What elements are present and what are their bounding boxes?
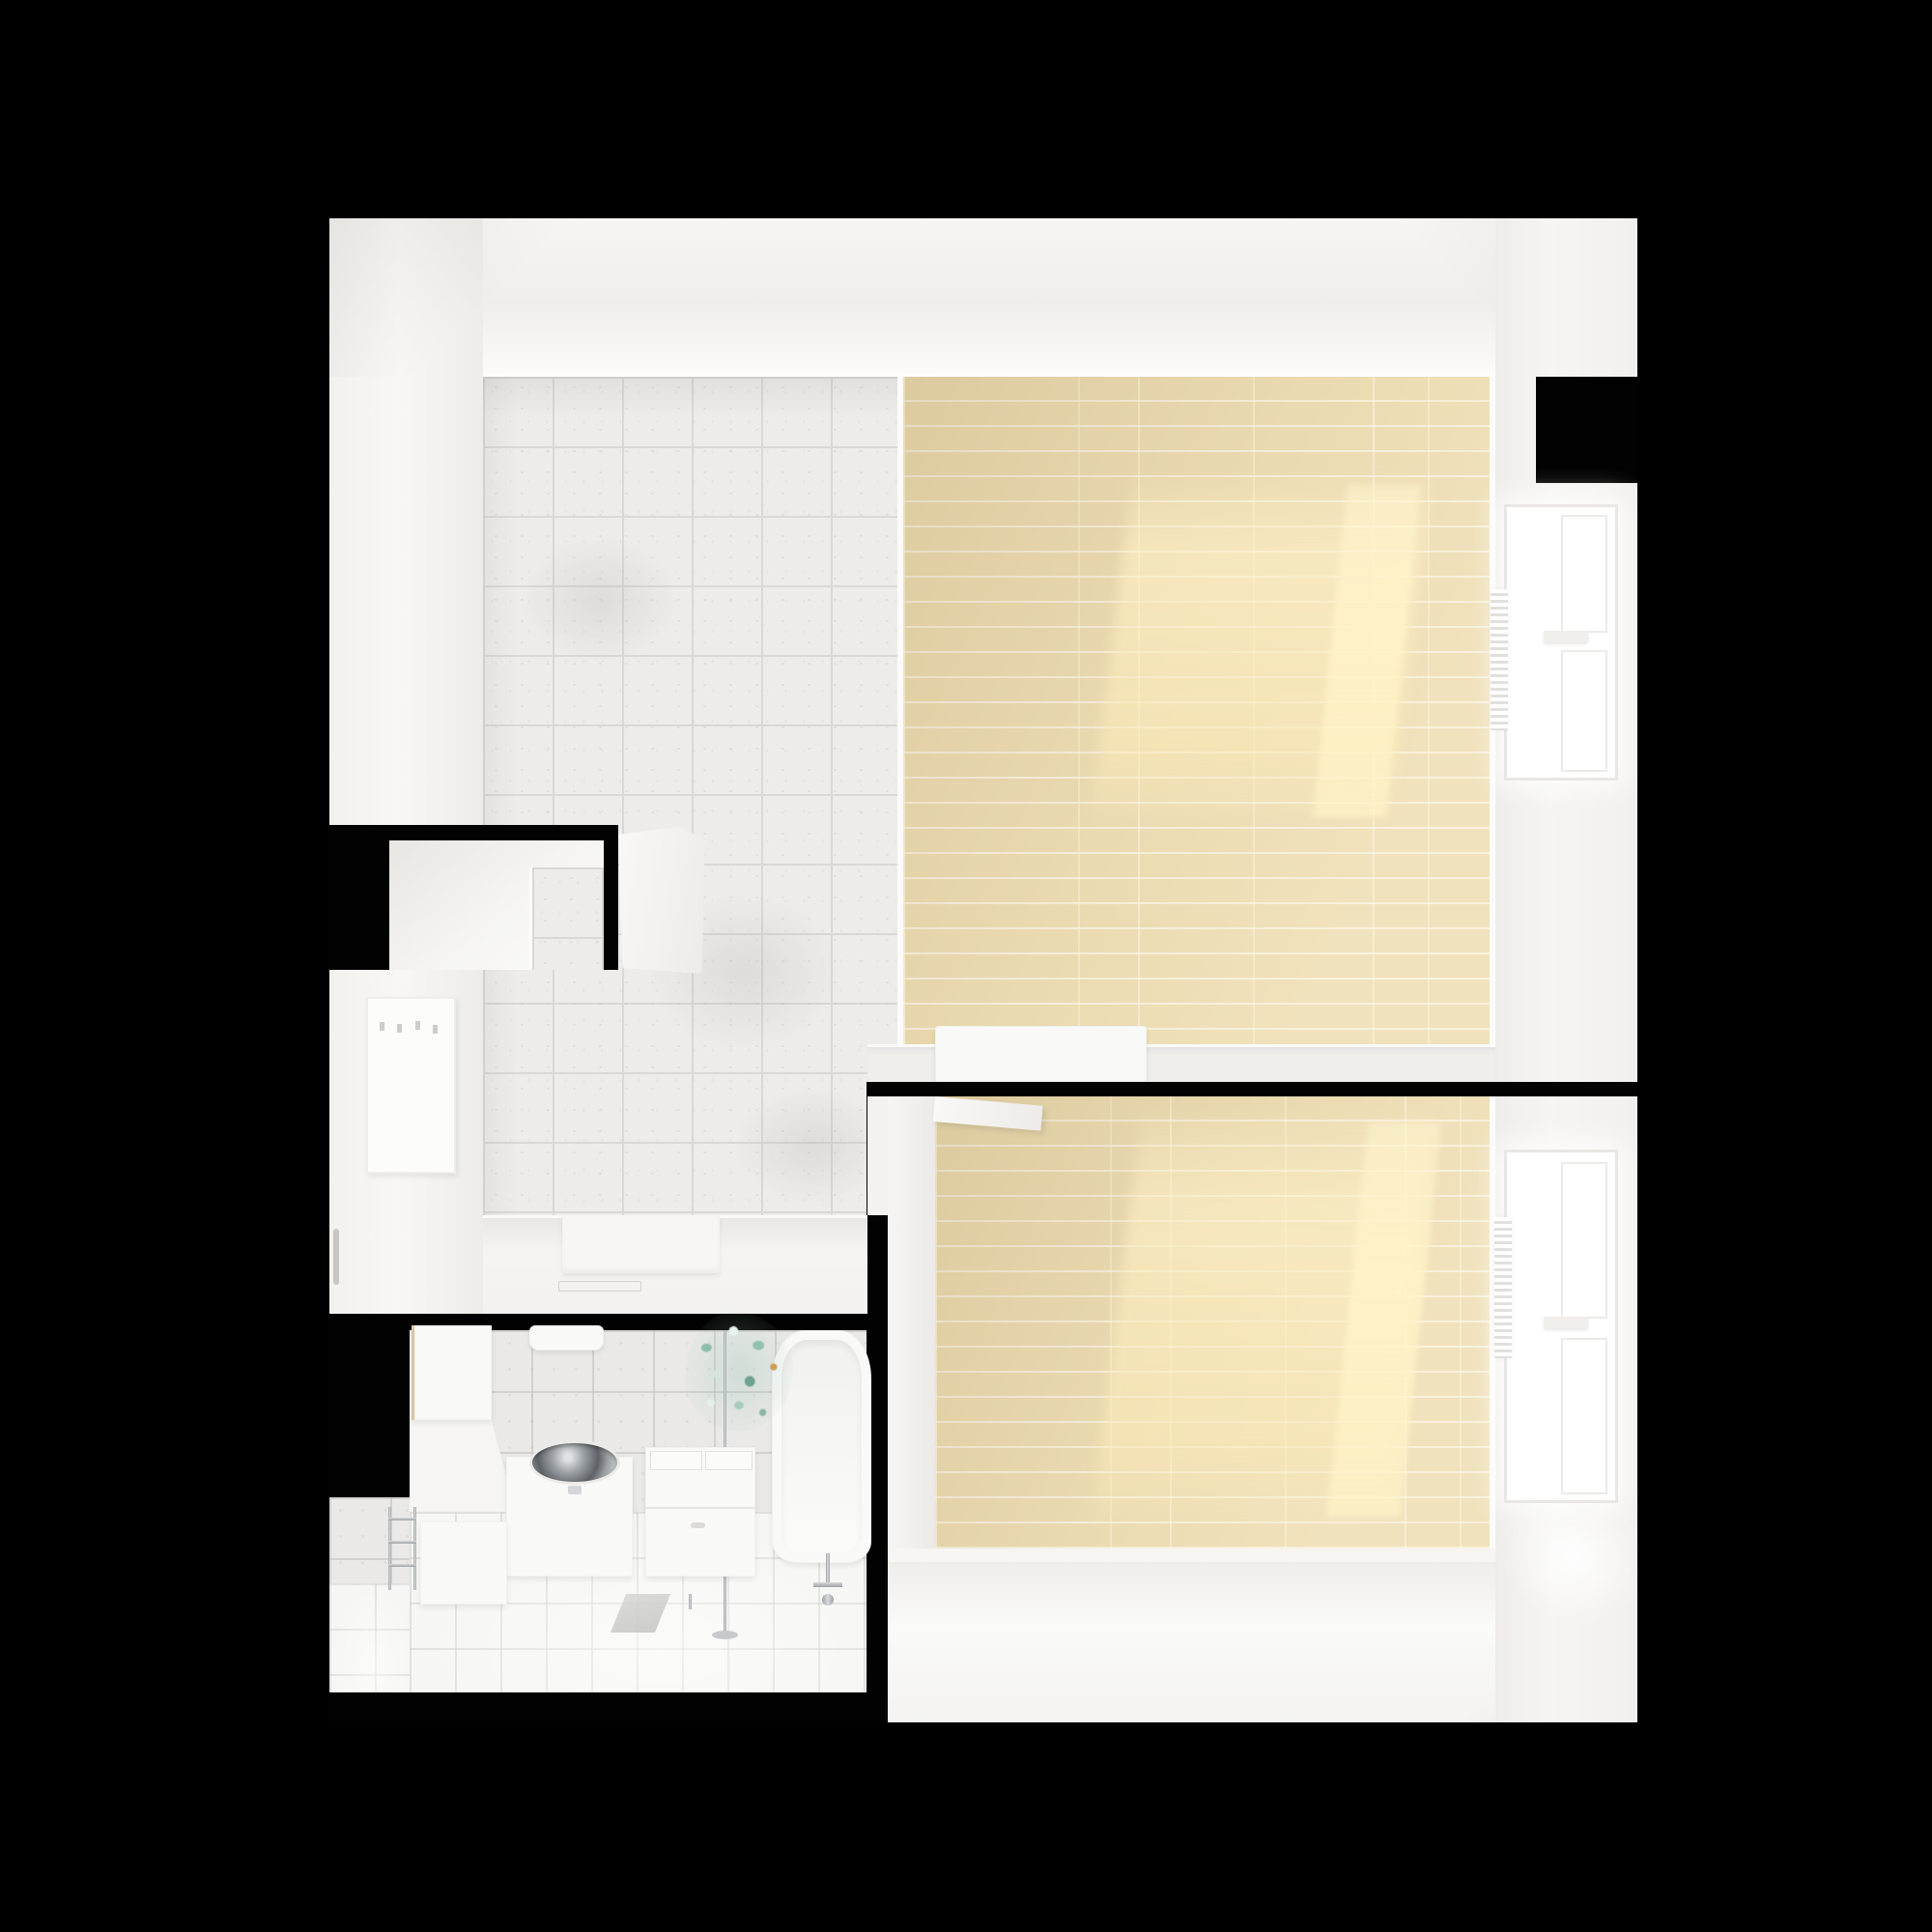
window-pane [1561,650,1607,772]
drawer-lid [705,1451,753,1470]
towel-rung [388,1541,416,1544]
towel-rung [388,1564,416,1567]
bath-low-cabinet [420,1521,507,1605]
floor-faucet [689,1594,692,1609]
radiator-upper [1491,589,1508,730]
window-lower [1507,1152,1615,1500]
tub-faucet-bar [813,1582,842,1587]
tile-stain [523,537,677,663]
floor-plan-render [0,0,1932,1932]
kitchen-door-leaf [618,827,705,974]
window-pane [1511,511,1553,774]
entry-wall-cut-left [329,825,389,970]
window-handle [1544,1317,1588,1328]
window-pane [1561,1338,1607,1494]
drawer-line [645,1507,755,1509]
window-pane [1561,515,1607,633]
south-edge-cut-bathroom [329,1692,888,1722]
wall-cabinet [529,1325,604,1350]
bathroom-door-leaf [412,1325,492,1420]
bathroom-notch-cut [329,1314,410,1497]
tub-faucet-stem [826,1553,830,1582]
drawer-handle [691,1522,705,1528]
tub-faucet-knob [822,1594,834,1605]
kitchen-counter [562,1215,720,1273]
apartment [329,218,1637,1722]
window-pane [1561,1162,1607,1319]
shower-pole-base [712,1631,738,1639]
sink-bowl [532,1443,617,1482]
entry-wall-cut-stub [604,825,618,970]
floor-threshold-mark [558,1281,641,1292]
coat-hooks [380,1022,384,1031]
living-room-floor [903,377,1495,1044]
bathroom-floor-tiles [329,1583,410,1692]
corner-shade-topleft [329,218,619,377]
sideboard [935,1026,1147,1082]
radiator-lower [1494,1217,1512,1358]
divider-wall-cut-east [1495,1082,1637,1096]
towel-rung [388,1518,416,1520]
entrance-door-handle [333,1229,339,1285]
window-upper [1507,507,1615,778]
drawer-lid [650,1451,702,1470]
bedroom-west-wall-face [888,1096,935,1548]
wall-recess-cut [1536,377,1637,483]
ambient-shadow-left [483,377,516,1215]
window-handle [1544,631,1588,642]
bedroom-floor [935,1096,1495,1548]
sink-tap [568,1486,582,1494]
doorway-tile-reveal [529,867,607,970]
bathtub-basin [781,1340,862,1553]
bedroom-south-baseboard [888,1548,1495,1562]
